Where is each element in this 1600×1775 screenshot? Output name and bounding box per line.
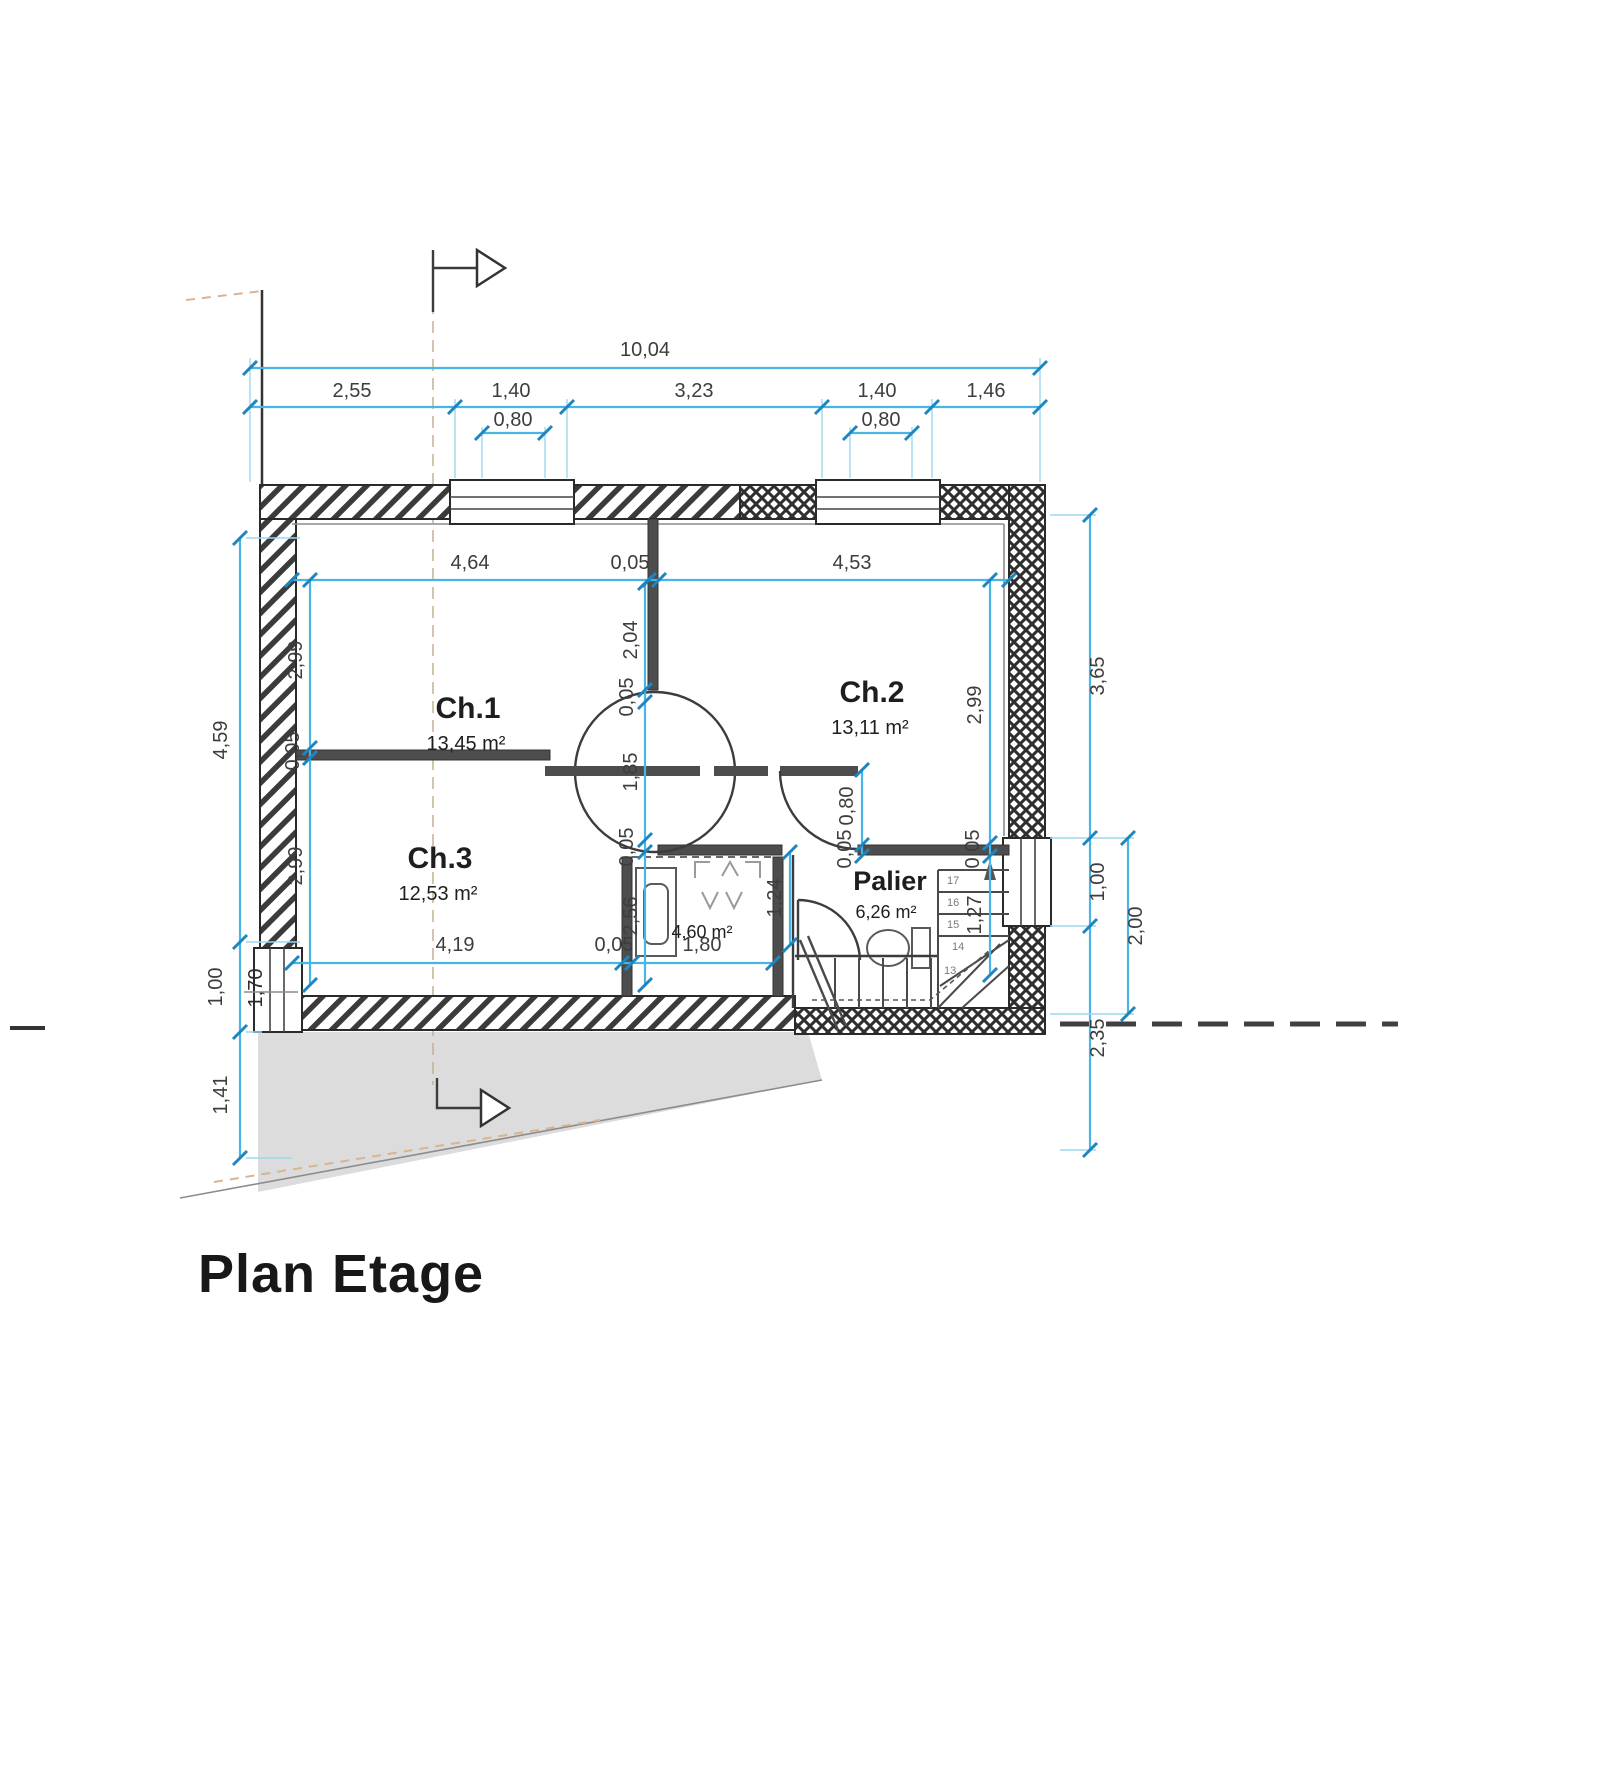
shower-fixture bbox=[695, 862, 760, 908]
dim-left-3: 1,70 bbox=[245, 969, 267, 1008]
dim-center2: 0,05 bbox=[616, 678, 638, 717]
stair-tread-number: 13 bbox=[944, 965, 956, 977]
washbasin bbox=[636, 868, 676, 956]
terrain-area bbox=[180, 1032, 822, 1198]
dim-top-seg5: 1,46 bbox=[967, 380, 1006, 402]
boundary-lines bbox=[10, 290, 1398, 1085]
dim-center4: 0,05 bbox=[616, 828, 638, 867]
dim-inner-top2: 0,05 bbox=[611, 552, 650, 574]
window-top-left bbox=[450, 480, 574, 524]
dim-left-4: 1,41 bbox=[210, 1076, 232, 1115]
dim-overall-width: 10,04 bbox=[620, 339, 670, 361]
dim-inner-left3: 2,99 bbox=[285, 847, 307, 886]
dim-center3: 1,85 bbox=[620, 753, 642, 792]
window-top-right bbox=[816, 480, 940, 524]
dim-right-mid2: 1,00 bbox=[1087, 863, 1109, 902]
dim-inner-top3: 4,53 bbox=[833, 552, 872, 574]
window-right bbox=[1003, 838, 1051, 926]
room-ch1-area: 13,45 m² bbox=[427, 733, 506, 755]
dim-inner-bottom2: 0,05 bbox=[595, 934, 634, 956]
room-ch3-area: 12,53 m² bbox=[399, 883, 478, 905]
stair-tread-number: 16 bbox=[947, 897, 959, 909]
dim-right-inner2: 0,05 bbox=[962, 830, 984, 869]
dim-right-outer1: 2,00 bbox=[1125, 907, 1147, 946]
room-ch3-name: Ch.3 bbox=[407, 842, 472, 875]
room-palier-area: 6,26 m² bbox=[855, 902, 916, 922]
floor-plan-drawing: 17 16 15 14 13 10,04 2,55 1,40 3,23 1,40… bbox=[0, 0, 1600, 1775]
dim-right-mid3: 2,35 bbox=[1087, 1019, 1109, 1058]
room-ch2-name: Ch.2 bbox=[839, 676, 904, 709]
dim-inner-left2: 0,05 bbox=[282, 732, 304, 771]
room-bath-area: 4,60 m² bbox=[671, 922, 732, 942]
dim-bath-right: 1,24 bbox=[764, 879, 786, 918]
dim-ch2-door1: 0,80 bbox=[836, 787, 858, 826]
dim-left-2: 1,00 bbox=[205, 968, 227, 1007]
stair-tread-number: 17 bbox=[947, 875, 959, 887]
dim-top-sub1: 0,80 bbox=[494, 409, 533, 431]
section-arrow-top bbox=[433, 250, 505, 312]
stair-tread-number: 14 bbox=[952, 941, 964, 953]
palier-door bbox=[798, 900, 860, 960]
dim-top-seg2: 1,40 bbox=[492, 380, 531, 402]
dim-right-inner1: 2,99 bbox=[964, 686, 986, 725]
page-title: Plan Etage bbox=[198, 1244, 484, 1304]
room-ch2-area: 13,11 m² bbox=[831, 717, 909, 739]
dim-inner-top1: 4,64 bbox=[451, 552, 490, 574]
dim-center5: 2,56 bbox=[620, 897, 642, 936]
dim-right-inner3: 1,27 bbox=[964, 896, 986, 935]
dim-inner-left1: 2,99 bbox=[285, 641, 307, 680]
floor-plan-page: 17 16 15 14 13 10,04 2,55 1,40 3,23 1,40… bbox=[0, 0, 1600, 1775]
hall-door-arcs bbox=[545, 692, 768, 852]
dim-inner-bottom1: 4,19 bbox=[436, 934, 475, 956]
room-ch1-name: Ch.1 bbox=[435, 692, 500, 725]
dim-top-seg1: 2,55 bbox=[333, 380, 372, 402]
stair-tread-number: 15 bbox=[947, 919, 959, 931]
dim-center1: 2,04 bbox=[620, 621, 642, 660]
dim-top-seg3: 3,23 bbox=[675, 380, 714, 402]
room-palier-name: Palier bbox=[853, 866, 927, 896]
dim-right-mid1: 3,65 bbox=[1087, 657, 1109, 696]
dim-top-seg4: 1,40 bbox=[858, 380, 897, 402]
toilet bbox=[867, 928, 930, 968]
dim-ch2-door2: 0,05 bbox=[834, 830, 856, 869]
dim-left-1: 4,59 bbox=[210, 721, 232, 760]
dim-top-sub2: 0,80 bbox=[862, 409, 901, 431]
